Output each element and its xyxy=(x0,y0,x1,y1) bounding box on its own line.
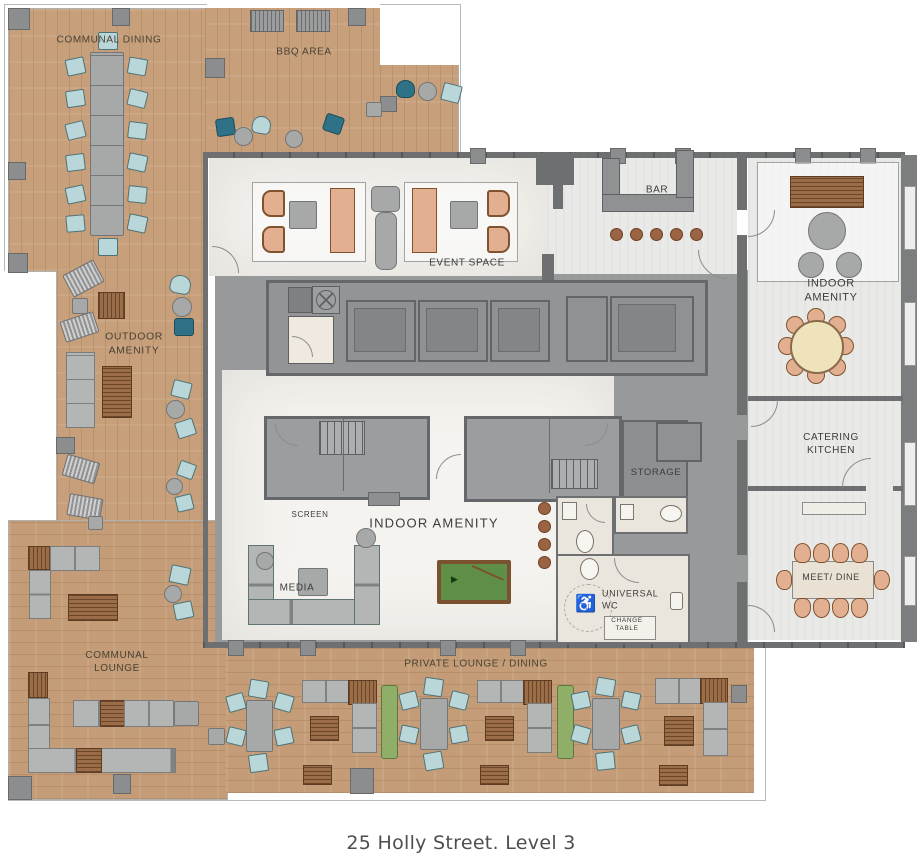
outdoor-sofa xyxy=(66,352,95,428)
side-table xyxy=(256,552,274,570)
sofa xyxy=(29,570,51,619)
chair xyxy=(874,570,890,590)
east-window xyxy=(904,302,916,366)
label-bbq-area: BBQ AREA xyxy=(276,46,331,59)
label-storage: STORAGE xyxy=(631,467,681,479)
west-wall xyxy=(203,152,208,648)
stair-core-east xyxy=(464,416,622,502)
column xyxy=(510,640,526,656)
door-arc xyxy=(586,504,605,523)
chair xyxy=(832,543,849,563)
stair-icon xyxy=(551,459,598,489)
sofa xyxy=(703,702,728,756)
right-wing-west-wall xyxy=(737,440,747,555)
column xyxy=(731,685,747,703)
round-table xyxy=(164,585,182,603)
sofa-long xyxy=(28,748,176,773)
elevator-car xyxy=(426,308,478,352)
bar-stool xyxy=(670,228,683,241)
pool-rack-icon: ▶ xyxy=(451,575,458,584)
chair xyxy=(620,690,641,710)
sofa xyxy=(655,678,703,704)
hob-icon xyxy=(316,290,336,310)
door-arc xyxy=(585,423,608,446)
coffee-table xyxy=(289,201,317,229)
catering-south-wall xyxy=(893,486,903,491)
chair xyxy=(126,152,148,173)
chair xyxy=(794,598,811,618)
pier xyxy=(553,185,563,209)
sink xyxy=(620,504,634,520)
chair xyxy=(836,252,862,278)
column xyxy=(112,8,130,26)
label-media: MEDIA xyxy=(280,582,315,595)
label-indoor-amenity-right: INDOOR AMENITY xyxy=(786,277,877,306)
elevator xyxy=(490,300,550,362)
label-catering-kitchen: CATERING KITCHEN xyxy=(803,431,859,457)
chair xyxy=(813,598,830,618)
sofa xyxy=(527,703,552,753)
column xyxy=(8,776,32,800)
planter xyxy=(480,765,509,785)
column xyxy=(113,774,131,794)
round-table xyxy=(166,478,183,495)
fireplace-column xyxy=(371,186,400,212)
bar-stool xyxy=(630,228,643,241)
round-table xyxy=(285,130,303,148)
coffee-table xyxy=(310,716,339,741)
floor-plan: ♿ ▶ xyxy=(0,0,922,860)
label-bar: BAR xyxy=(646,184,668,197)
chair xyxy=(65,153,86,172)
toilet-icon xyxy=(580,558,599,580)
chair xyxy=(794,543,811,563)
coffee-table xyxy=(485,716,514,741)
plan-caption: 25 Holly Street. Level 3 xyxy=(0,832,922,854)
column xyxy=(348,8,366,26)
pier xyxy=(536,153,574,185)
chair xyxy=(215,117,236,137)
elevator-car xyxy=(498,308,540,352)
chair xyxy=(851,598,868,618)
wheelchair-icon: ♿ xyxy=(575,594,596,614)
kitchenette-unit xyxy=(288,287,312,313)
wc-cubicle xyxy=(614,496,688,534)
sofa-wood-section xyxy=(100,700,126,727)
kitchenette-sink xyxy=(312,286,340,314)
side-table xyxy=(174,701,199,726)
round-table xyxy=(166,400,185,419)
right-wing-west-wall xyxy=(737,153,747,210)
label-universal-wc: UNIVERSAL WC xyxy=(602,588,658,611)
chair xyxy=(798,252,824,278)
column xyxy=(8,162,26,180)
stair-screen-tab xyxy=(368,492,400,506)
chair xyxy=(423,750,445,771)
sofa xyxy=(124,700,174,727)
round-table xyxy=(790,320,844,374)
bbq-grill xyxy=(296,10,330,32)
bar-stool xyxy=(650,228,663,241)
coffee-table xyxy=(450,201,478,229)
meet-dine-sideboard xyxy=(802,502,866,515)
chair xyxy=(248,753,269,773)
sofa xyxy=(352,703,377,753)
tub-chair xyxy=(487,226,510,253)
green-planter xyxy=(381,685,398,759)
sofa xyxy=(28,698,50,752)
elevator-car xyxy=(618,304,676,352)
counter-stool xyxy=(538,502,551,515)
counter-stool xyxy=(538,520,551,533)
bar-stool xyxy=(610,228,623,241)
storage-elevator xyxy=(656,422,702,462)
media-sofa xyxy=(354,545,380,625)
column xyxy=(350,768,374,794)
planter xyxy=(98,292,125,319)
chair xyxy=(776,570,792,590)
label-change-table: CHANGE TABLE xyxy=(611,617,642,633)
column xyxy=(228,640,244,656)
toilet-icon xyxy=(660,505,682,522)
label-communal-dining: COMMUNAL DINING xyxy=(57,34,162,47)
sofa-corner-wood xyxy=(700,678,728,704)
column xyxy=(300,640,316,656)
label-event-space: EVENT SPACE xyxy=(429,257,505,270)
column xyxy=(205,58,225,78)
service-shaft xyxy=(566,296,608,362)
right-wing-west-wall xyxy=(737,235,747,415)
sofa-corner-wood xyxy=(523,680,552,705)
chair xyxy=(65,214,85,233)
east-window xyxy=(904,442,916,506)
chair xyxy=(398,724,419,744)
fireplace-screen xyxy=(375,212,397,270)
column xyxy=(8,253,28,273)
side-table xyxy=(366,102,382,117)
counter-stool xyxy=(538,538,551,551)
chair xyxy=(127,185,148,204)
elevator xyxy=(346,300,416,362)
sofa xyxy=(477,680,525,703)
pool-cue xyxy=(472,565,504,580)
east-window xyxy=(904,556,916,606)
chair xyxy=(813,543,830,563)
tub-chair xyxy=(262,190,285,217)
pool-table: ▶ xyxy=(437,560,511,604)
sink xyxy=(562,502,577,520)
sofa xyxy=(302,680,350,703)
sofa-wood-section xyxy=(76,748,102,773)
side-table xyxy=(72,298,88,314)
chair xyxy=(127,121,148,140)
sofa-brown xyxy=(790,176,864,208)
stair-divider xyxy=(343,419,344,491)
column xyxy=(56,437,75,454)
stair-divider xyxy=(549,419,550,493)
side-table xyxy=(208,728,225,745)
tub-chair xyxy=(487,190,510,217)
label-meet-dine: MEET/ DINE xyxy=(802,572,860,584)
goods-elevator xyxy=(610,296,694,362)
column xyxy=(380,96,397,112)
counter-stool xyxy=(538,556,551,569)
chair xyxy=(851,543,868,563)
elevator-car xyxy=(354,308,406,352)
chair xyxy=(168,564,191,586)
chair xyxy=(396,80,415,98)
sofa-tan xyxy=(330,188,355,253)
dining-table xyxy=(246,700,273,752)
dining-table xyxy=(592,698,620,750)
toilet-icon xyxy=(576,530,594,553)
chair xyxy=(98,238,118,256)
chair xyxy=(174,318,194,336)
label-screen: SCREEN xyxy=(292,510,329,520)
round-table xyxy=(808,212,846,250)
side-table xyxy=(88,516,103,530)
planter xyxy=(659,765,688,786)
coffee-table xyxy=(664,716,694,746)
chair xyxy=(423,677,444,697)
column xyxy=(470,148,486,164)
chair xyxy=(449,725,470,745)
chair xyxy=(248,678,270,699)
grab-rail xyxy=(670,592,683,610)
tub-chair xyxy=(262,226,285,253)
door-arc xyxy=(275,423,298,446)
column xyxy=(440,640,456,656)
planter xyxy=(303,765,332,785)
round-table xyxy=(418,82,437,101)
label-indoor-amenity-center: INDOOR AMENITY xyxy=(369,516,498,533)
dining-table xyxy=(90,52,124,236)
round-table xyxy=(234,127,253,146)
daybed xyxy=(68,594,118,621)
chair xyxy=(595,751,616,771)
planter xyxy=(28,672,48,698)
dining-table xyxy=(420,698,448,750)
chair xyxy=(65,89,86,108)
column xyxy=(8,8,30,30)
chair xyxy=(126,213,148,234)
elevator xyxy=(418,300,488,362)
sofa xyxy=(50,546,100,571)
chair xyxy=(127,56,149,76)
label-private-lounge-dining: PRIVATE LOUNGE / DINING xyxy=(404,658,547,671)
sofa-corner-wood xyxy=(28,546,52,570)
bar-stool xyxy=(690,228,703,241)
chair xyxy=(832,598,849,618)
stair-icon xyxy=(319,421,365,455)
label-outdoor-amenity: OUTDOOR AMENITY xyxy=(105,330,163,357)
right-wing-west-wall xyxy=(737,582,747,642)
bar-counter xyxy=(676,150,694,198)
sofa-tan xyxy=(412,188,437,253)
label-communal-lounge: COMMUNAL LOUNGE xyxy=(85,649,148,675)
door-arc xyxy=(614,558,639,583)
chair xyxy=(595,676,617,697)
round-dining-group xyxy=(782,312,848,378)
wc-cubicle xyxy=(556,496,614,560)
outdoor-daybed xyxy=(102,366,132,418)
round-table xyxy=(172,297,192,317)
sofa-corner-wood xyxy=(348,680,377,705)
stair-core-west xyxy=(264,416,430,500)
bbq-grill xyxy=(250,10,284,32)
east-window xyxy=(904,186,916,250)
